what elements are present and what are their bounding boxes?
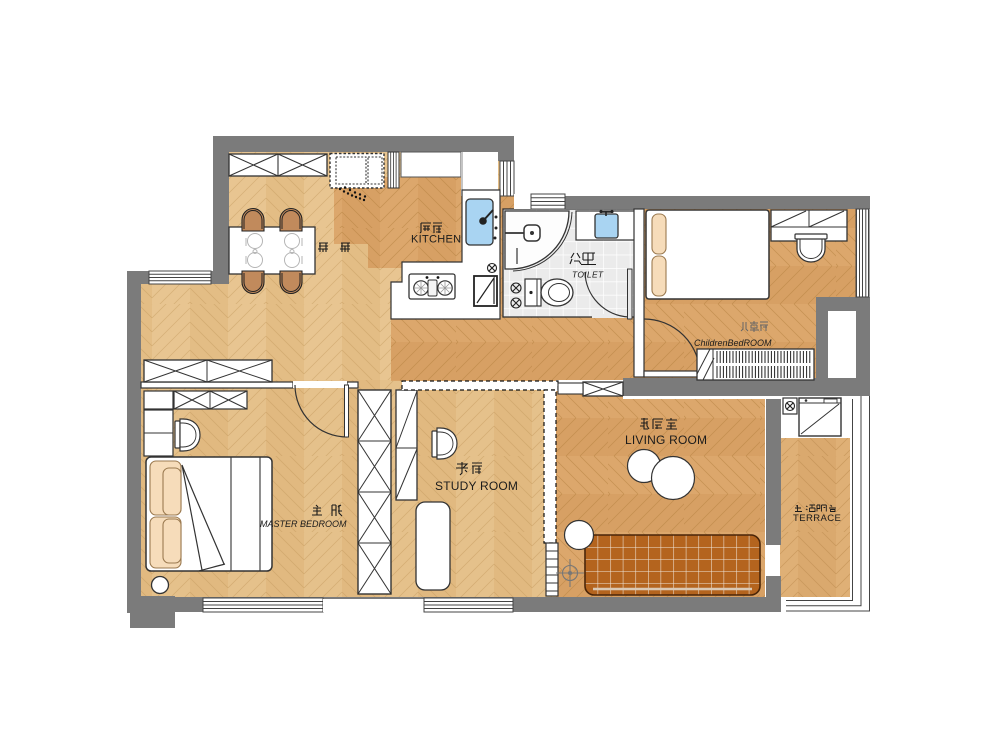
svg-text:KITCHEN: KITCHEN	[411, 234, 461, 246]
svg-text:LIVING ROOM: LIVING ROOM	[625, 433, 707, 447]
svg-text:MASTER BEDROOM: MASTER BEDROOM	[260, 519, 347, 529]
svg-text:TERRACE: TERRACE	[793, 513, 841, 524]
svg-text:STUDY ROOM: STUDY ROOM	[435, 479, 518, 493]
svg-text:ChildrenBedROOM: ChildrenBedROOM	[694, 338, 772, 348]
svg-text:TOILET: TOILET	[572, 270, 604, 280]
